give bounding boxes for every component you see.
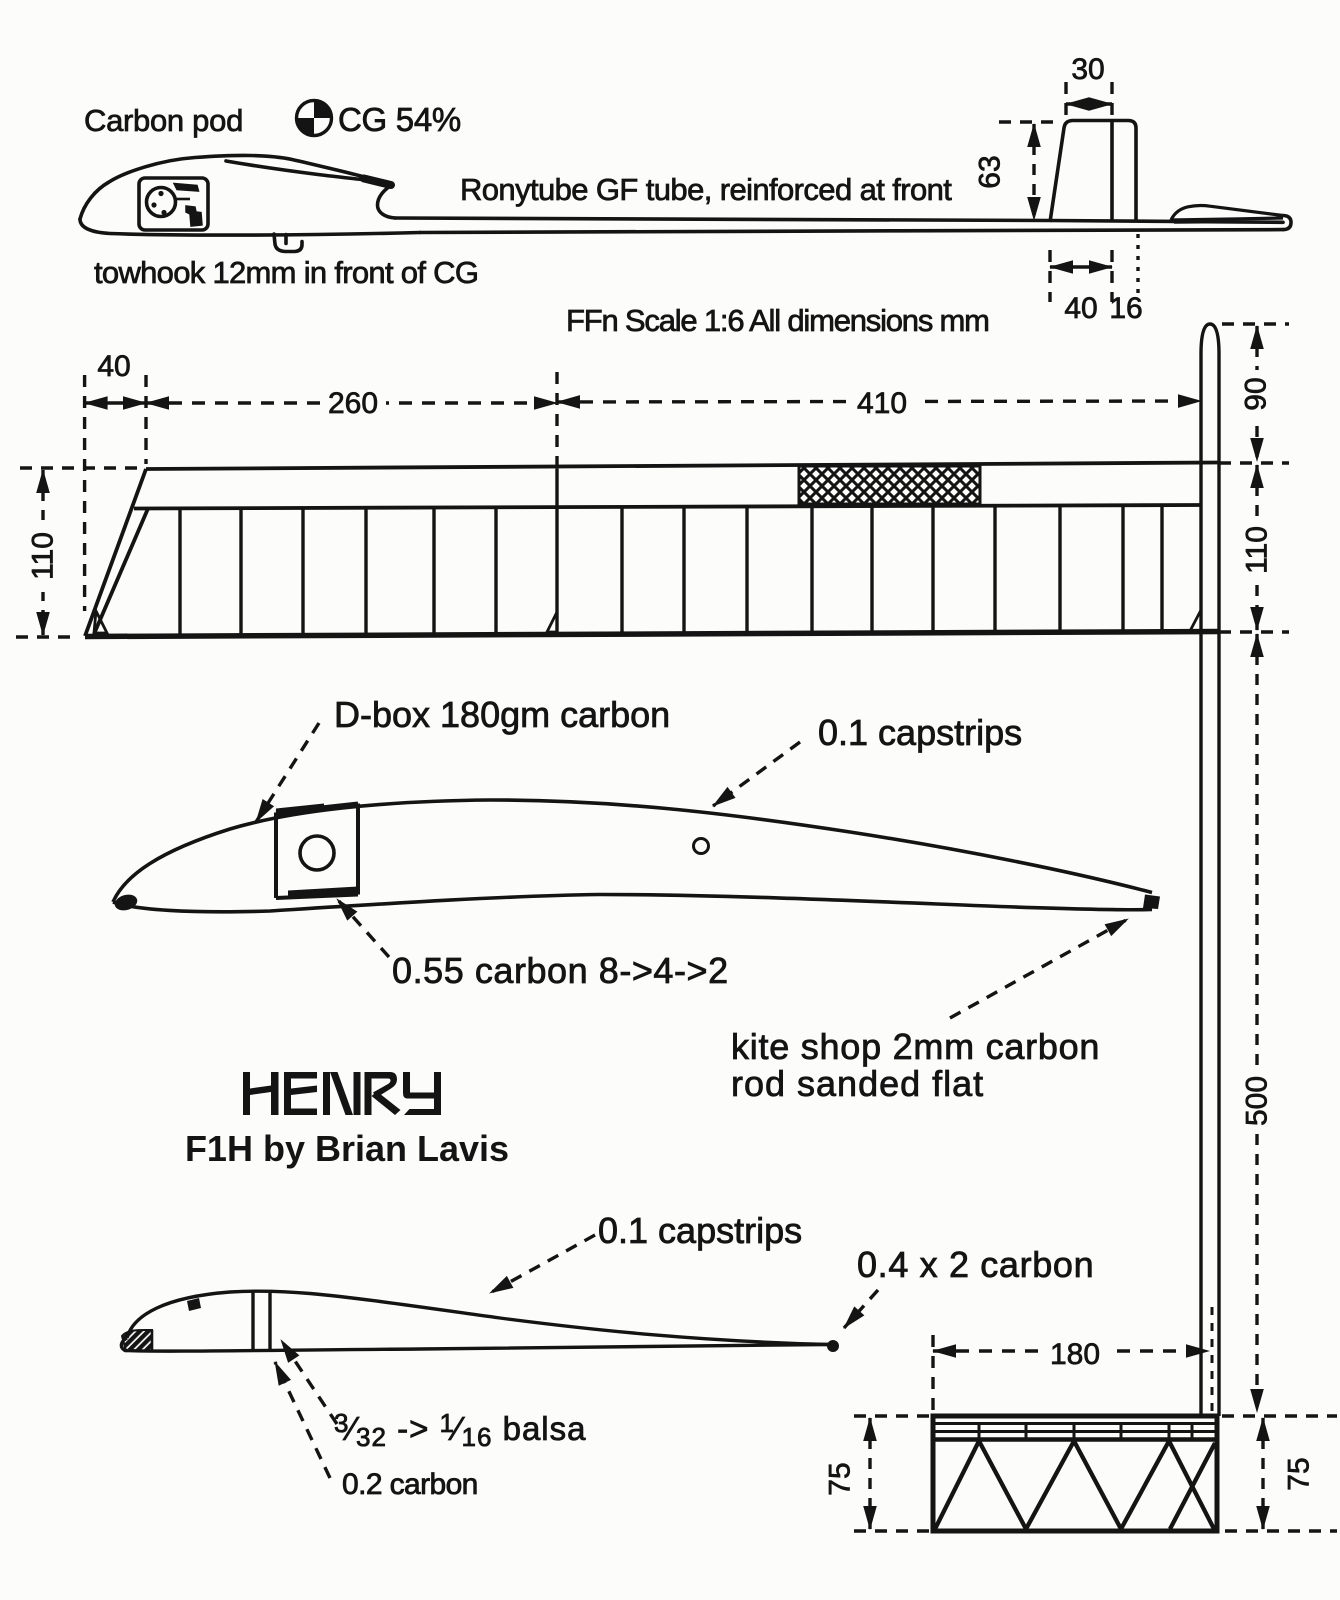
svg-text:260: 260 bbox=[328, 387, 378, 420]
svg-text:75: 75 bbox=[1283, 1457, 1316, 1490]
svg-text:0.4 x 2 carbon: 0.4 x 2 carbon bbox=[857, 1244, 1094, 1285]
svg-text:towhook 12mm in front of CG: towhook 12mm in front of CG bbox=[94, 255, 478, 290]
svg-text:63: 63 bbox=[974, 155, 1007, 188]
svg-text:0.1 capstrips: 0.1 capstrips bbox=[598, 1210, 802, 1251]
svg-text:500: 500 bbox=[1241, 1076, 1274, 1126]
svg-text:90: 90 bbox=[1240, 377, 1273, 410]
svg-text:FFn Scale 1:6 All dimensions m: FFn Scale 1:6 All dimensions mm bbox=[566, 303, 989, 338]
svg-text:kite shop 2mm carbon: kite shop 2mm carbon bbox=[731, 1026, 1100, 1067]
svg-text:Carbon pod: Carbon pod bbox=[84, 103, 243, 138]
svg-text:Ronytube GF tube, reinforced a: Ronytube GF tube, reinforced at front bbox=[460, 172, 952, 207]
svg-text:180: 180 bbox=[1050, 1338, 1100, 1371]
svg-text:rod sanded flat: rod sanded flat bbox=[731, 1063, 984, 1104]
svg-text:75: 75 bbox=[824, 1462, 857, 1495]
svg-text:0.55 carbon 8->4->2: 0.55 carbon 8->4->2 bbox=[392, 950, 729, 991]
svg-text:F1H by Brian Lavis: F1H by Brian Lavis bbox=[185, 1128, 509, 1169]
svg-text:40: 40 bbox=[1064, 292, 1097, 325]
svg-text:30: 30 bbox=[1071, 53, 1104, 86]
svg-text:40: 40 bbox=[97, 350, 130, 383]
svg-text:0.2 carbon: 0.2 carbon bbox=[342, 1468, 478, 1501]
svg-text:16: 16 bbox=[1109, 292, 1142, 325]
svg-text:110: 110 bbox=[27, 532, 60, 580]
svg-text:CG 54%: CG 54% bbox=[338, 101, 461, 138]
svg-text:0.1 capstrips: 0.1 capstrips bbox=[818, 712, 1022, 753]
svg-text:3⁄32 -> 1⁄16 balsa: 3⁄32 -> 1⁄16 balsa bbox=[334, 1408, 586, 1452]
svg-text:110: 110 bbox=[1241, 526, 1274, 574]
svg-text:410: 410 bbox=[857, 387, 907, 420]
svg-text:D-box 180gm carbon: D-box 180gm carbon bbox=[334, 694, 670, 735]
